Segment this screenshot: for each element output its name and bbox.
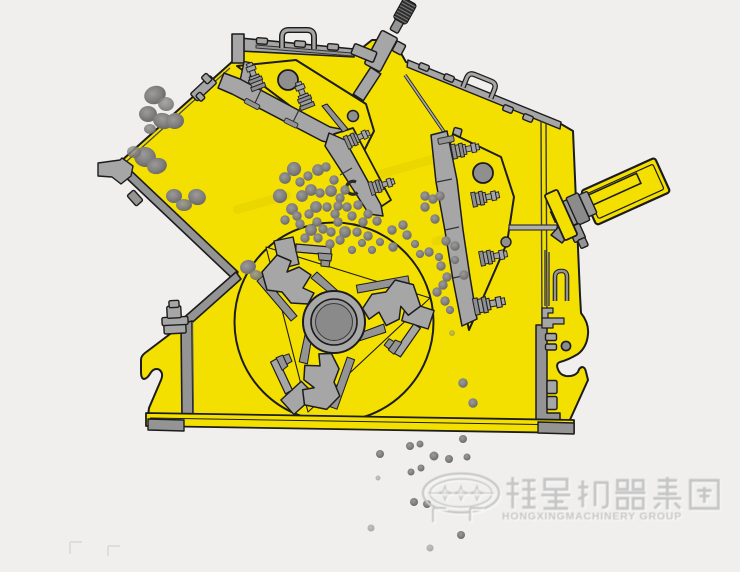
svg-text:HONGXINGMACHINERY GROUP: HONGXINGMACHINERY GROUP [502,511,682,523]
